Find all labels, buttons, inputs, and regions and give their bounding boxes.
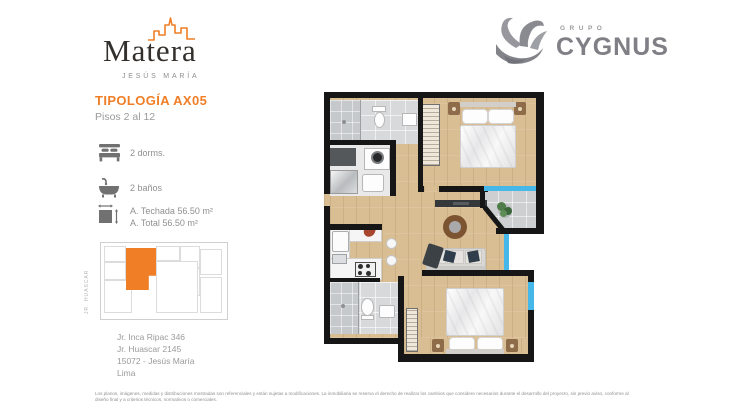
typology-floors: Pisos 2 al 12 — [95, 111, 155, 123]
footer-disclaimer: Los planos, imágenes, medidas y distribu… — [95, 391, 643, 403]
keyplan-unit — [156, 246, 180, 261]
bed-1-pillow — [462, 109, 488, 124]
shower-2 — [330, 282, 358, 334]
keyplan-highlighted-unit — [126, 248, 156, 290]
area-icon — [97, 203, 121, 227]
wall-closet1-left — [418, 98, 423, 186]
bed-1-pillow — [488, 109, 514, 124]
wall-laundry-right — [390, 144, 396, 196]
developer-name: CYGNUS — [556, 33, 669, 62]
wall-right-upper — [536, 92, 544, 234]
sofa-pillow — [467, 250, 480, 263]
wall-balcony-left — [480, 188, 485, 208]
spec-covered-area-label: A. Techada 56.50 m² — [130, 206, 213, 216]
closet-bedroom2 — [406, 308, 418, 352]
brand-district: JESÚS MARÍA — [122, 73, 199, 80]
laundry-sink — [362, 174, 384, 192]
shower-1-glass — [360, 100, 361, 144]
nightstand — [432, 339, 444, 352]
toilet-2-bowl — [361, 298, 374, 316]
shower-2-glass — [358, 282, 359, 334]
plant-icon — [500, 210, 507, 217]
address-line: Jr. Inca Ripac 346 — [117, 331, 194, 343]
typology-title: TIPOLOGÍA AX05 — [95, 93, 207, 108]
bed-2-duvet — [446, 288, 504, 336]
toilet-2-tank — [361, 315, 374, 320]
washing-machine-door — [371, 151, 384, 164]
wall-bottom-left — [324, 338, 404, 344]
wall-kitchen-top — [324, 224, 382, 230]
keyplan-unit — [104, 262, 126, 280]
shower-2-drain — [341, 304, 345, 308]
wall-bath2-top — [330, 278, 380, 282]
sink-1 — [402, 113, 417, 126]
bed-1-duvet — [460, 125, 516, 168]
bed-icon — [97, 144, 122, 162]
brochure-page: { "header": { "brand": { "wordmark": "Ma… — [0, 0, 730, 410]
address-block: Jr. Inca Ripac 346 Jr. Huascar 2145 1507… — [117, 331, 194, 379]
toilet-1-bowl — [374, 112, 385, 128]
exterior-void — [509, 234, 536, 270]
wall-top — [324, 92, 544, 98]
door-gap-bedroom1 — [424, 186, 439, 192]
keyplan-street-label: JR. HUASCAR — [84, 252, 90, 314]
closet-bedroom1 — [422, 104, 440, 166]
address-line: Jr. Huascar 2145 — [117, 343, 194, 355]
bed-1-headboard — [460, 102, 516, 107]
wall-bath1-bottom — [330, 140, 396, 145]
nightstand — [448, 102, 460, 115]
keyplan — [100, 242, 228, 320]
keyplan-unit — [156, 261, 198, 313]
wall-mid-vertical — [398, 276, 404, 362]
dining-table-top — [449, 221, 461, 233]
kitchen-sink — [332, 254, 347, 264]
spec-bathrooms-label: 2 baños — [130, 183, 162, 193]
address-line: Lima — [117, 367, 194, 379]
keyplan-unit — [200, 249, 222, 275]
keyplan-unit — [104, 246, 126, 262]
stove-burner — [358, 264, 363, 269]
cygnus-logo: GRUPO CYGNUS — [490, 12, 670, 74]
stove-burner — [358, 271, 362, 275]
address-line: 15072 - Jesús María — [117, 355, 194, 367]
swan-icon — [490, 16, 550, 68]
wall-bedroom2-top — [422, 270, 534, 276]
matera-logo: Matera JESÚS MARÍA — [95, 14, 245, 84]
nightstand — [506, 339, 518, 352]
door-gap-entry — [324, 194, 330, 206]
window-living — [504, 234, 509, 270]
bar-stool — [386, 255, 397, 266]
shower-1-drain — [342, 120, 346, 124]
wall-left — [324, 92, 330, 338]
tv-console-detail — [453, 202, 469, 205]
keyplan-unit — [200, 277, 222, 313]
brand-wordmark: Matera — [103, 33, 197, 69]
sink-2 — [379, 305, 395, 318]
spec-bedrooms-label: 2 dorms. — [130, 148, 165, 158]
developer-group-label: GRUPO — [560, 25, 606, 32]
bar-stool — [386, 238, 397, 249]
floor-plan — [322, 92, 546, 364]
duct-shaft — [330, 148, 356, 166]
spec-total-area-label: A. Total 56.50 m² — [130, 218, 198, 228]
stove-burner — [366, 264, 370, 268]
laundry-mirror — [330, 170, 358, 194]
window-balcony — [484, 186, 536, 191]
fridge — [332, 231, 349, 252]
window-bedroom2 — [528, 282, 534, 310]
bathtub-icon — [97, 178, 121, 198]
exterior-void — [534, 234, 546, 364]
stove-burner — [366, 271, 371, 276]
wall-bedroom2-bottom — [398, 354, 534, 362]
